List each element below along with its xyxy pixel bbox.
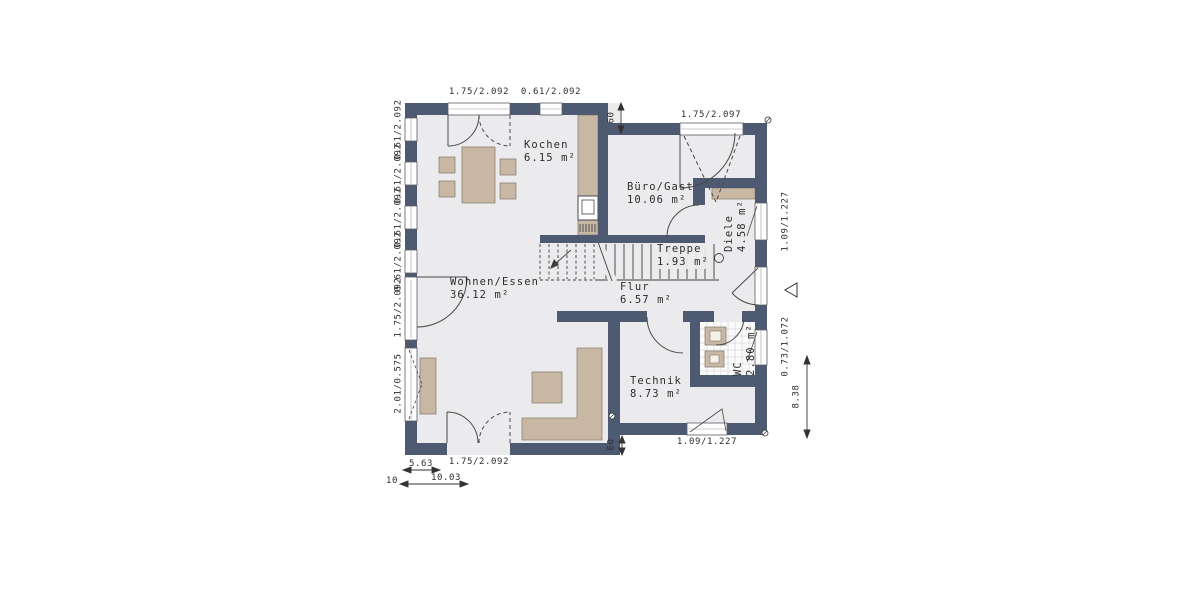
- room-name: Diele: [723, 215, 735, 252]
- room-label-flur: Flur 6.57 m²: [620, 281, 672, 307]
- room-name: Technik: [630, 375, 682, 387]
- room-name: Flur: [620, 281, 650, 293]
- room-label-technik: Technik 8.73 m²: [630, 375, 682, 401]
- room-label-diele: Diele 4.58 m²: [723, 192, 749, 252]
- room-name: Kochen: [524, 139, 569, 151]
- room-name: WC: [732, 361, 744, 376]
- room-label-wohnen-essen: Wohnen/Essen 36.12 m²: [450, 276, 539, 302]
- dim-buero-window: 1.75/2.097: [669, 110, 753, 121]
- chair: [439, 181, 455, 197]
- dim-diele-window: 1.09/1.227: [781, 190, 792, 254]
- room-area: 2.80 m²: [745, 324, 757, 376]
- coffee-table: [532, 372, 562, 403]
- room-area: 6.15 m²: [524, 152, 576, 164]
- sideboard: [420, 358, 436, 414]
- room-name: Büro/Gast: [627, 181, 694, 193]
- room-label-kochen: Kochen 6.15 m²: [524, 139, 576, 165]
- dim-kitchen-window: 0.61/2.092: [509, 87, 593, 98]
- dim-width-left: 10: [386, 476, 398, 487]
- dim-left-low-window: 2.01/0.575: [394, 352, 405, 416]
- dim-technik-window: 1.09/1.227: [665, 437, 749, 448]
- floor-plan-canvas: Wohnen/Essen 36.12 m² Kochen 6.15 m² Bür…: [0, 0, 1200, 600]
- stair-newel-post: [715, 254, 724, 263]
- room-area: 10.06 m²: [627, 194, 686, 206]
- dim-width-partial: 5.63: [403, 459, 439, 470]
- floor-plan-drawing: [0, 0, 1200, 600]
- dim-bottom-door: 1.75/2.092: [437, 457, 521, 468]
- chair: [439, 157, 455, 173]
- dim-height-partial: 8.38: [792, 377, 803, 417]
- room-label-buero-gast: Büro/Gast 10.06 m²: [627, 181, 694, 207]
- room-area: 4.58 m²: [736, 200, 748, 252]
- room-name: Wohnen/Essen: [450, 276, 539, 288]
- room-name: Treppe: [657, 243, 702, 255]
- room-area: 6.57 m²: [620, 294, 672, 306]
- dim-wc-window: 0.73/1.072: [781, 315, 792, 379]
- dim-width-total: 10.03: [424, 473, 468, 484]
- dining-table: [462, 147, 495, 203]
- dim-offset-top: 60: [607, 108, 618, 128]
- room-area: 1.93 m²: [657, 256, 709, 268]
- chair: [500, 159, 516, 175]
- room-label-wc: WC 2.80 m²: [732, 320, 758, 376]
- chair: [500, 183, 516, 199]
- room-label-treppe: Treppe 1.93 m²: [655, 243, 711, 269]
- room-area: 8.73 m²: [630, 388, 682, 400]
- room-area: 36.12 m²: [450, 289, 509, 301]
- dim-offset-bottom: 60: [607, 435, 618, 455]
- dim-left-door: 1.75/2.092: [394, 276, 405, 340]
- entrance-arrow-icon: [785, 283, 797, 297]
